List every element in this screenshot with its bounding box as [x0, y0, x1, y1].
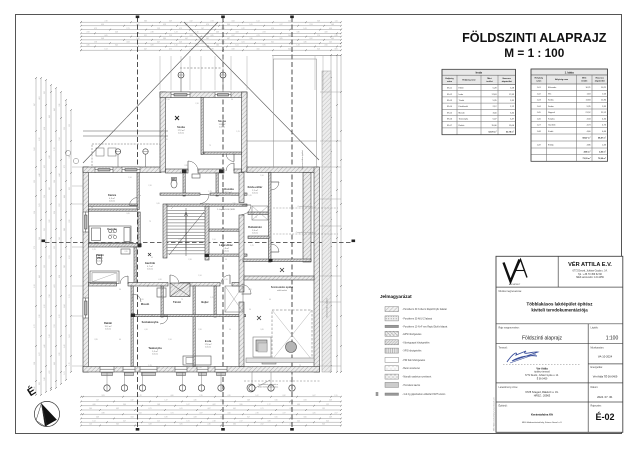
svg-text:1,78: 1,78 — [54, 147, 56, 150]
svg-text:1,69: 1,69 — [331, 24, 334, 26]
svg-text:Ruhatároló: Ruhatároló — [248, 225, 262, 229]
svg-text:17,63: 17,63 — [509, 94, 515, 96]
svg-text:Többlakásos lakóépület építész: Többlakásos lakóépület építész — [527, 302, 594, 307]
svg-text:1,25: 1,25 — [208, 191, 211, 193]
svg-text:4,35: 4,35 — [87, 45, 90, 47]
svg-text:0,64: 0,64 — [232, 20, 235, 22]
svg-text:1,25: 1,25 — [250, 245, 253, 247]
svg-text:6725 Szeged, Rákóczi u. 31.: 6725 Szeged, Rákóczi u. 31. — [525, 390, 558, 394]
svg-text:4,10: 4,10 — [144, 329, 147, 331]
svg-text:3,56: 3,56 — [322, 424, 325, 426]
svg-text:0,98: 0,98 — [102, 412, 105, 414]
svg-text:2,46: 2,46 — [59, 237, 61, 240]
svg-text:75: 75 — [149, 221, 151, 223]
svg-text:1,23: 1,23 — [175, 32, 178, 34]
svg-text:1,68: 1,68 — [34, 362, 36, 365]
svg-text:1,66: 1,66 — [44, 265, 46, 268]
svg-text:Földszinti alaprajz: Földszinti alaprajz — [522, 336, 563, 342]
svg-text:1,35: 1,35 — [322, 408, 325, 410]
svg-text:2,85: 2,85 — [248, 289, 251, 291]
svg-text:4,47: 4,47 — [144, 48, 147, 50]
svg-text:Gardrób: Gardrób — [548, 125, 556, 127]
svg-text:75: 75 — [209, 145, 211, 147]
svg-text:0,50: 0,50 — [297, 420, 300, 422]
svg-text:3,75: 3,75 — [263, 45, 266, 47]
svg-text:Előszoba: Előszoba — [548, 87, 557, 89]
svg-text:Gardrób: Gardrób — [145, 261, 156, 265]
svg-text:1,55: 1,55 — [335, 395, 338, 397]
svg-text:3,29: 3,29 — [151, 45, 154, 47]
svg-text:75: 75 — [299, 365, 301, 367]
svg-text:Hasznos: Hasznos — [503, 78, 512, 80]
svg-text:1,55: 1,55 — [329, 41, 332, 43]
svg-text:2,85: 2,85 — [184, 165, 187, 167]
svg-text:2,24: 2,24 — [59, 137, 61, 140]
svg-text:4,10: 4,10 — [178, 239, 181, 241]
svg-text:3,71: 3,71 — [171, 412, 174, 414]
svg-text:Munkaszám:: Munkaszám: — [591, 347, 605, 350]
svg-text:3,45: 3,45 — [331, 38, 334, 40]
svg-text:2,76: 2,76 — [317, 35, 320, 37]
svg-text:0,64: 0,64 — [139, 412, 142, 414]
svg-text:1,01: 1,01 — [236, 45, 239, 47]
svg-text:2,17: 2,17 — [240, 420, 243, 422]
svg-text:0,79: 0,79 — [271, 28, 274, 30]
svg-text:4,60: 4,60 — [171, 395, 174, 397]
svg-text:3,45: 3,45 — [126, 213, 129, 215]
svg-text:Előtér: Előtér — [459, 87, 465, 90]
svg-text:MÉK Hódmezővásárhely, Kolonó J: MÉK Hódmezővásárhely, Kolonó József u. 8… — [493, 397, 496, 431]
svg-text:52,78 m²: 52,78 m² — [488, 130, 496, 133]
svg-text:Szoba: Szoba — [548, 106, 555, 108]
svg-text:WC: WC — [548, 93, 552, 95]
svg-text:3,45: 3,45 — [164, 139, 167, 141]
svg-text:- Porotherm 10 N+F nes Rapid D: - Porotherm 10 N+F nes Rapid Dryfix fala… — [402, 325, 448, 328]
svg-text:0,03: 0,03 — [54, 362, 56, 365]
svg-text:0,71: 0,71 — [261, 408, 264, 410]
svg-text:építész tervező: építész tervező — [534, 371, 550, 374]
svg-text:0,72: 0,72 — [242, 28, 245, 30]
svg-text:1,77: 1,77 — [268, 404, 271, 406]
svg-text:1,84: 1,84 — [216, 45, 219, 47]
svg-text:Konyha: Konyha — [548, 118, 556, 120]
svg-text:1,33: 1,33 — [297, 45, 300, 47]
svg-text:1,60: 1,60 — [89, 408, 92, 410]
svg-text:1,55: 1,55 — [69, 124, 71, 127]
svg-text:Rajz megnevezése:: Rajz megnevezése: — [499, 327, 520, 330]
svg-text:1,88: 1,88 — [44, 377, 46, 380]
svg-text:VA-10-2024: VA-10-2024 — [598, 355, 613, 359]
svg-text:2,38: 2,38 — [151, 32, 154, 34]
svg-text:1. lakás: 1. lakás — [565, 70, 575, 74]
svg-text:3,39: 3,39 — [44, 91, 46, 94]
svg-text:2,09: 2,09 — [329, 417, 332, 419]
svg-text:1,67: 1,67 — [187, 404, 190, 406]
svg-text:Energetika:: Energetika: — [591, 366, 603, 369]
svg-text:4,09: 4,09 — [325, 32, 328, 34]
svg-text:1,68: 1,68 — [157, 404, 160, 406]
svg-text:3,08: 3,08 — [101, 38, 104, 40]
svg-text:Mosdó: Mosdó — [141, 302, 150, 306]
svg-text:0,27: 0,27 — [157, 41, 160, 43]
svg-text:0,09: 0,09 — [169, 20, 172, 22]
svg-text:2,82: 2,82 — [206, 38, 209, 40]
svg-text:Teakonyha: Teakonyha — [148, 346, 162, 350]
svg-text:alapterület: alapterület — [502, 80, 512, 83]
svg-text:burkolat: burkolat — [97, 260, 104, 263]
svg-text:2,11: 2,11 — [69, 155, 71, 158]
svg-text:1,50: 1,50 — [260, 175, 263, 177]
svg-text:1,63: 1,63 — [304, 28, 307, 30]
svg-text:2,16: 2,16 — [179, 41, 182, 43]
svg-text:3,83: 3,83 — [144, 20, 147, 22]
svg-text:90: 90 — [231, 99, 233, 101]
svg-text:burkolat: burkolat — [252, 192, 259, 195]
svg-text:2,00: 2,00 — [325, 45, 328, 47]
svg-text:2,15: 2,15 — [157, 420, 160, 422]
svg-text:2,82: 2,82 — [64, 265, 66, 268]
svg-text:1,61: 1,61 — [64, 371, 66, 374]
svg-text:Dátum:: Dátum: — [591, 386, 599, 389]
svg-text:2,61: 2,61 — [44, 228, 46, 231]
svg-text:burkolat: burkolat — [219, 126, 226, 129]
svg-text:Teakonyha: Teakonyha — [459, 119, 470, 121]
svg-text:2,10: 2,10 — [224, 279, 227, 281]
svg-text:4,42: 4,42 — [54, 108, 56, 111]
svg-text:75: 75 — [181, 299, 183, 301]
svg-text:Helyiség: Helyiség — [535, 78, 544, 80]
svg-text:3,07: 3,07 — [34, 103, 36, 106]
svg-text:- PIR hab hőszigetelés: - PIR hab hőszigetelés — [402, 359, 426, 362]
svg-text:Szomszédos épület: Szomszédos épület — [271, 286, 293, 289]
svg-text:Mért: Mért — [487, 77, 492, 80]
svg-text:1,50: 1,50 — [198, 275, 201, 277]
svg-text:HRSZ.: 20963: HRSZ.: 20963 — [534, 394, 551, 398]
svg-text:MÉK azonosító: C-8-1059: MÉK azonosító: C-8-1059 — [576, 276, 604, 279]
svg-text:Helyiség: Helyiség — [445, 78, 454, 80]
svg-text:3,83: 3,83 — [64, 228, 66, 231]
svg-text:1,78: 1,78 — [94, 41, 97, 43]
svg-text:73,33 m²: 73,33 m² — [582, 157, 590, 160]
svg-text:- Beton szerkezet: - Beton szerkezet — [402, 367, 420, 370]
svg-text:1,89: 1,89 — [165, 417, 168, 419]
svg-text:burkolat: burkolat — [223, 250, 230, 253]
svg-text:2,43: 2,43 — [288, 35, 291, 37]
svg-text:0,49: 0,49 — [64, 344, 66, 347]
svg-text:3,65: 3,65 — [116, 424, 119, 426]
svg-text:0,97: 0,97 — [200, 412, 203, 414]
svg-text:52,78 m²: 52,78 m² — [506, 130, 514, 133]
svg-text:burkolat: burkolat — [105, 328, 112, 331]
svg-text:1,22: 1,22 — [326, 404, 329, 406]
svg-text:3,45: 3,45 — [115, 45, 118, 47]
svg-text:2,76: 2,76 — [34, 246, 36, 249]
svg-text:4,00: 4,00 — [64, 195, 66, 198]
svg-text:Nappali: Nappali — [548, 112, 555, 114]
svg-text:burkolat: burkolat — [252, 232, 259, 235]
svg-text:68,47 m²: 68,47 m² — [582, 137, 590, 140]
svg-text:1,56: 1,56 — [34, 180, 36, 183]
svg-text:4,61: 4,61 — [233, 408, 236, 410]
svg-text:4,72: 4,72 — [169, 48, 172, 50]
svg-text:terület: terület — [486, 80, 492, 83]
svg-text:1,14: 1,14 — [34, 211, 36, 214]
svg-text:1,11: 1,11 — [335, 20, 338, 22]
svg-text:burkolat: burkolat — [109, 200, 116, 203]
svg-text:70,90 m²: 70,90 m² — [598, 157, 606, 160]
svg-text:0,56: 0,56 — [228, 412, 231, 414]
svg-text:Kerámiafalva Kft: Kerámiafalva Kft — [531, 413, 553, 417]
svg-text:3,61: 3,61 — [39, 382, 41, 385]
svg-text:Fürdő: Fürdő — [548, 131, 554, 133]
svg-text:90: 90 — [119, 289, 121, 291]
svg-text:Építtető:: Építtető: — [499, 405, 508, 408]
svg-text:4,73: 4,73 — [257, 35, 260, 37]
svg-text:Tároló: Tároló — [459, 100, 466, 102]
svg-text:4,44: 4,44 — [59, 173, 61, 176]
svg-text:2,98: 2,98 — [49, 294, 51, 297]
svg-text:3,15: 3,15 — [39, 314, 41, 317]
svg-text:3,45: 3,45 — [248, 195, 251, 197]
svg-text:15,06: 15,06 — [509, 125, 515, 127]
svg-text:3,13: 3,13 — [317, 48, 320, 50]
svg-text:4,86 m²: 4,86 m² — [584, 150, 591, 153]
svg-text:- EPS hőszigetelés: - EPS hőszigetelés — [402, 333, 422, 336]
svg-text:0,92: 0,92 — [69, 255, 71, 258]
svg-text:2,19: 2,19 — [200, 395, 203, 397]
svg-text:0,21: 0,21 — [242, 41, 245, 43]
svg-text:1,25: 1,25 — [92, 249, 95, 251]
svg-text:- 1x2 rtg gipszkarton előtétfa: - 1x2 rtg gipszkarton előtétfal CW75 váz… — [402, 393, 446, 396]
svg-text:4,74: 4,74 — [206, 24, 209, 26]
svg-text:1:100: 1:100 — [606, 336, 619, 342]
svg-text:Lépcsőház: Lépcsőház — [219, 243, 233, 247]
svg-text:4,87: 4,87 — [227, 38, 230, 40]
svg-text:0,26: 0,26 — [39, 137, 41, 140]
svg-text:Csatorna kiépítése: Csatorna kiépítése — [298, 205, 313, 208]
svg-text:2,53: 2,53 — [310, 24, 313, 26]
svg-text:60: 60 — [119, 339, 121, 341]
svg-text:10,21: 10,21 — [601, 87, 607, 89]
svg-text:3,15: 3,15 — [275, 417, 278, 419]
svg-text:4,38: 4,38 — [216, 32, 219, 34]
svg-text:0,55: 0,55 — [288, 20, 291, 22]
svg-text:2,57: 2,57 — [335, 412, 338, 414]
svg-text:2,26: 2,26 — [64, 127, 66, 130]
svg-text:3,51: 3,51 — [271, 41, 274, 43]
svg-text:0,85: 0,85 — [211, 35, 214, 37]
svg-text:3,89: 3,89 — [163, 38, 166, 40]
svg-text:60: 60 — [109, 245, 111, 247]
svg-text:3,56: 3,56 — [304, 417, 307, 419]
svg-text:6772 Deszk, Juhász Gyula u. 14: 6772 Deszk, Juhász Gyula u. 14. — [525, 375, 559, 377]
svg-text:2,85: 2,85 — [198, 367, 201, 369]
svg-text:burkolat: burkolat — [178, 132, 185, 135]
svg-text:É 06-0409: É 06-0409 — [537, 377, 548, 380]
svg-text:1,21: 1,21 — [69, 294, 71, 297]
svg-text:- Kőzetgyapot hőszigetelés: - Kőzetgyapot hőszigetelés — [402, 341, 430, 344]
svg-text:Tároló: Tároló — [173, 300, 181, 304]
svg-text:4,48: 4,48 — [39, 173, 41, 176]
svg-text:3,79: 3,79 — [64, 165, 66, 168]
svg-text:17,63: 17,63 — [491, 94, 497, 96]
svg-text:2,02: 2,02 — [310, 38, 313, 40]
svg-text:0,84: 0,84 — [64, 304, 66, 307]
svg-text:4,70: 4,70 — [228, 395, 231, 397]
svg-text:3,17: 3,17 — [247, 417, 250, 419]
svg-text:WC: WC — [172, 177, 176, 181]
svg-text:0,62: 0,62 — [39, 352, 41, 355]
svg-text:Mért: Mért — [582, 77, 587, 80]
svg-text:0,29: 0,29 — [59, 314, 61, 317]
svg-text:Rajzszám:: Rajzszám: — [591, 405, 602, 408]
svg-text:2,10: 2,10 — [195, 103, 198, 105]
svg-text:Helyiség neve: Helyiség neve — [555, 79, 569, 81]
svg-text:3,85: 3,85 — [280, 38, 283, 40]
svg-text:1,54: 1,54 — [93, 420, 96, 422]
svg-text:68,47 m²: 68,47 m² — [598, 137, 606, 140]
svg-text:4,38: 4,38 — [49, 155, 51, 158]
svg-text:75: 75 — [175, 195, 177, 197]
svg-text:burkolat: burkolat — [205, 346, 212, 349]
svg-text:kiviteli tervdokumentációja: kiviteli tervdokumentációja — [531, 308, 588, 313]
svg-text:2,74: 2,74 — [211, 20, 214, 22]
svg-text:2,85: 2,85 — [94, 339, 97, 341]
svg-text:0,13: 0,13 — [34, 284, 36, 287]
svg-text:M = 1 : 100: M = 1 : 100 — [504, 46, 564, 60]
svg-text:1,20: 1,20 — [89, 424, 92, 426]
svg-text:3,59: 3,59 — [69, 187, 71, 190]
svg-text:Kamra: Kamra — [108, 193, 117, 197]
svg-text:1,25: 1,25 — [148, 365, 151, 367]
svg-text:3,25: 3,25 — [59, 352, 61, 355]
svg-text:burkolat: burkolat — [109, 234, 116, 237]
svg-text:1,75: 1,75 — [69, 362, 71, 365]
svg-text:0,32: 0,32 — [131, 400, 134, 402]
svg-text:2,18: 2,18 — [213, 420, 216, 422]
svg-text:0,95: 0,95 — [44, 165, 46, 168]
svg-text:Munka megnevezése:: Munka megnevezése: — [499, 290, 523, 293]
svg-text:Közlekedő: Közlekedő — [459, 106, 469, 108]
svg-text:60: 60 — [249, 367, 251, 369]
svg-text:2,66: 2,66 — [49, 219, 51, 222]
svg-text:burkolat: burkolat — [225, 194, 232, 197]
svg-text:4,50: 4,50 — [257, 48, 260, 50]
svg-text:burkolat: burkolat — [147, 268, 154, 271]
svg-text:0,28: 0,28 — [59, 275, 61, 278]
svg-text:0,41: 0,41 — [180, 408, 183, 410]
svg-text:1,03: 1,03 — [69, 334, 71, 337]
svg-text:Bojler: Bojler — [201, 300, 208, 304]
svg-text:4,17: 4,17 — [280, 24, 283, 26]
svg-text:3,20: 3,20 — [326, 420, 329, 422]
svg-text:4,54: 4,54 — [329, 28, 332, 30]
svg-text:3,28: 3,28 — [268, 420, 271, 422]
svg-text:ARCHITEKT: ARCHITEKT — [509, 283, 521, 286]
svg-text:4,03: 4,03 — [39, 96, 41, 99]
svg-text:1,02: 1,02 — [256, 395, 259, 397]
svg-text:4,99: 4,99 — [49, 370, 51, 373]
svg-text:3,83: 3,83 — [102, 395, 105, 397]
svg-text:Csapadékvíz elvezetés: Csapadékvíz elvezetés — [296, 231, 315, 234]
svg-text:2,19: 2,19 — [169, 35, 172, 37]
svg-text:0,99: 0,99 — [297, 404, 300, 406]
svg-text:0,63: 0,63 — [127, 41, 130, 43]
svg-text:0,26: 0,26 — [44, 304, 46, 307]
svg-text:3,43: 3,43 — [149, 424, 152, 426]
svg-text:3,45: 3,45 — [260, 329, 263, 331]
svg-text:21,52: 21,52 — [585, 112, 591, 114]
svg-text:1,50: 1,50 — [166, 99, 169, 101]
svg-text:Szoba: Szoba — [548, 100, 555, 102]
svg-text:1,10: 1,10 — [196, 32, 199, 34]
svg-text:0,73: 0,73 — [94, 28, 97, 30]
svg-text:Közle.előtér: Közle.előtér — [248, 185, 263, 189]
svg-text:Szomszédos épület: Szomszédos épület — [301, 150, 304, 169]
svg-text:4,63: 4,63 — [54, 284, 56, 287]
svg-text:3,45: 3,45 — [156, 203, 159, 205]
svg-text:Erkély: Erkély — [548, 145, 554, 147]
svg-text:2,10: 2,10 — [148, 185, 151, 187]
svg-text:90: 90 — [91, 207, 93, 209]
svg-text:1,13: 1,13 — [157, 28, 160, 30]
svg-text:2,44: 2,44 — [39, 237, 41, 240]
svg-text:2,94: 2,94 — [44, 195, 46, 198]
svg-text:6800 Hódmezővásárhely, Katona: 6800 Hódmezővásárhely, Katona József u. … — [522, 421, 563, 424]
svg-text:4,12: 4,12 — [190, 20, 193, 22]
svg-text:21,52: 21,52 — [601, 112, 607, 114]
svg-text:4,58: 4,58 — [115, 32, 118, 34]
svg-text:3,45: 3,45 — [140, 299, 143, 301]
svg-text:0,97: 0,97 — [232, 35, 235, 37]
svg-text:2,02: 2,02 — [261, 424, 264, 426]
svg-text:2,43 m²: 2,43 m² — [599, 150, 606, 153]
svg-text:3,21: 3,21 — [144, 35, 147, 37]
svg-text:90: 90 — [225, 259, 227, 261]
svg-text:1,08: 1,08 — [34, 147, 36, 150]
svg-text:Jelmagyarázat: Jelmagyarázat — [380, 294, 412, 299]
svg-text:2,69: 2,69 — [247, 400, 250, 402]
svg-text:2,78: 2,78 — [256, 412, 259, 414]
svg-text:2024. 07. 30.: 2024. 07. 30. — [597, 395, 613, 399]
svg-text:Hasznos: Hasznos — [596, 78, 605, 80]
svg-text:2,40: 2,40 — [208, 424, 211, 426]
svg-text:3,53: 3,53 — [190, 35, 193, 37]
svg-text:0,27: 0,27 — [123, 420, 126, 422]
svg-text:burkolat: burkolat — [152, 353, 159, 356]
svg-text:4,25: 4,25 — [313, 412, 316, 414]
svg-text:3,06: 3,06 — [227, 24, 230, 26]
svg-text:- Porotherm 30 AKU Z falazat: - Porotherm 30 AKU Z falazat — [402, 317, 432, 320]
svg-text:0,65: 0,65 — [105, 35, 108, 37]
svg-text:- Homokos kavics: - Homokos kavics — [402, 385, 421, 387]
svg-text:1,81: 1,81 — [39, 203, 41, 206]
svg-text:4,63: 4,63 — [236, 32, 239, 34]
svg-text:1,53: 1,53 — [105, 48, 108, 50]
svg-text:Vér Attila: Vér Attila — [536, 366, 548, 370]
svg-text:2,10: 2,10 — [188, 259, 191, 261]
svg-text:4,10: 4,10 — [96, 171, 99, 173]
svg-text:3,95: 3,95 — [69, 219, 71, 222]
svg-text:3,36: 3,36 — [297, 32, 300, 34]
svg-text:3,08: 3,08 — [317, 20, 320, 22]
svg-text:1,50: 1,50 — [212, 239, 215, 241]
svg-text:4,66: 4,66 — [93, 404, 96, 406]
svg-text:3,64: 3,64 — [131, 417, 134, 419]
svg-text:1,05: 1,05 — [250, 24, 253, 26]
svg-text:4,02: 4,02 — [213, 404, 216, 406]
svg-text:1,78: 1,78 — [139, 395, 142, 397]
